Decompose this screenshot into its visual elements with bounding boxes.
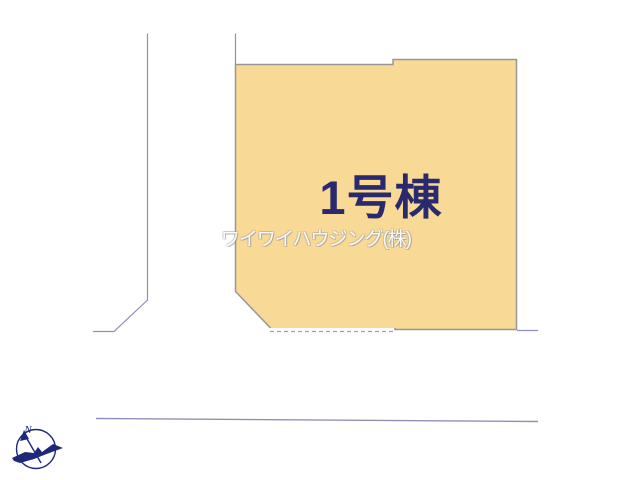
watermark: ワイワイハウジング(株) [210, 229, 422, 252]
compass-north-letter: N [23, 424, 32, 436]
road-boundary-left [93, 34, 148, 332]
compass-icon: N [12, 424, 63, 469]
road-boundary-bottom [96, 419, 538, 422]
site-plan: N 1号棟 ワイワイハウジング(株) [0, 0, 640, 480]
lot-label: 1号棟 [305, 172, 457, 224]
